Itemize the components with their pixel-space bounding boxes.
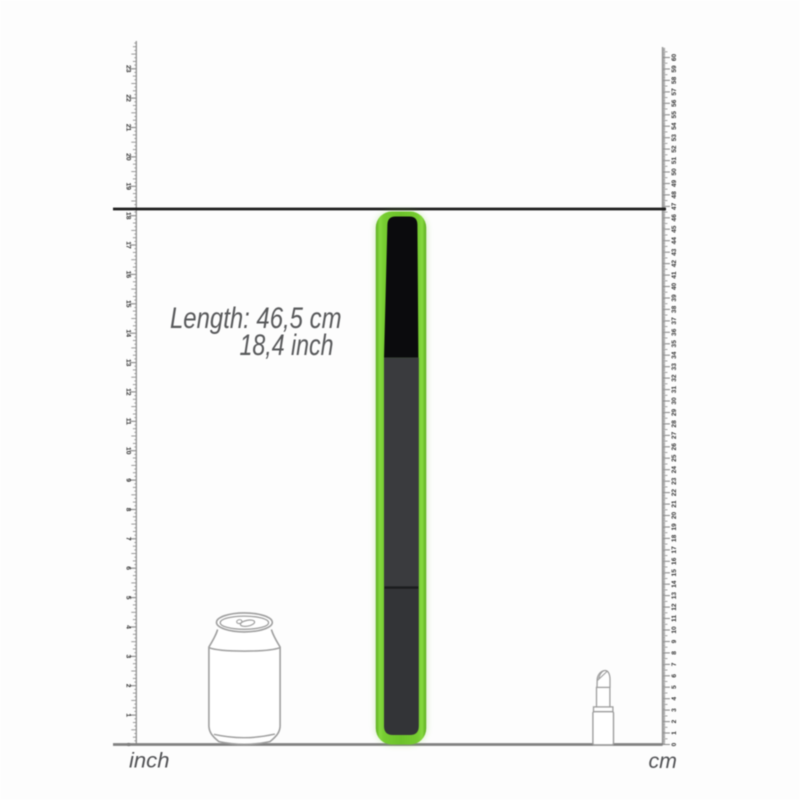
svg-text:55: 55 xyxy=(671,111,678,119)
svg-text:30: 30 xyxy=(671,397,678,405)
svg-text:6: 6 xyxy=(125,566,132,570)
svg-text:59: 59 xyxy=(671,65,678,73)
svg-text:3: 3 xyxy=(125,655,132,659)
svg-text:4: 4 xyxy=(671,697,678,701)
svg-text:24: 24 xyxy=(671,466,678,474)
svg-text:19: 19 xyxy=(125,183,132,191)
svg-text:46: 46 xyxy=(671,214,678,222)
svg-text:57: 57 xyxy=(671,88,678,96)
svg-text:44: 44 xyxy=(671,237,678,245)
svg-text:1: 1 xyxy=(671,731,678,735)
svg-text:31: 31 xyxy=(671,386,678,394)
svg-text:56: 56 xyxy=(671,99,678,107)
svg-text:9: 9 xyxy=(125,478,132,482)
svg-text:10: 10 xyxy=(671,626,678,634)
svg-text:4: 4 xyxy=(125,625,132,629)
svg-text:45: 45 xyxy=(671,225,678,233)
svg-text:17: 17 xyxy=(125,241,132,249)
svg-text:26: 26 xyxy=(671,443,678,451)
svg-text:37: 37 xyxy=(671,317,678,325)
svg-text:3: 3 xyxy=(671,708,678,712)
svg-text:60: 60 xyxy=(671,54,678,62)
svg-text:15: 15 xyxy=(125,300,132,308)
svg-text:5: 5 xyxy=(125,596,132,600)
svg-text:16: 16 xyxy=(671,557,678,565)
svg-text:cm: cm xyxy=(649,749,678,773)
svg-text:38: 38 xyxy=(671,305,678,313)
svg-text:2: 2 xyxy=(671,719,678,723)
svg-text:23: 23 xyxy=(671,477,678,485)
svg-text:23: 23 xyxy=(125,65,132,73)
svg-text:49: 49 xyxy=(671,180,678,188)
svg-text:6: 6 xyxy=(671,674,678,678)
svg-text:13: 13 xyxy=(125,359,132,367)
svg-text:48: 48 xyxy=(671,191,678,199)
svg-text:21: 21 xyxy=(671,500,678,508)
svg-text:47: 47 xyxy=(671,202,678,210)
svg-text:18: 18 xyxy=(671,534,678,542)
svg-text:13: 13 xyxy=(671,592,678,600)
svg-text:7: 7 xyxy=(671,662,678,666)
svg-text:21: 21 xyxy=(125,124,132,132)
svg-text:28: 28 xyxy=(671,420,678,428)
svg-text:11: 11 xyxy=(125,418,132,425)
svg-text:42: 42 xyxy=(671,260,678,268)
svg-text:8: 8 xyxy=(671,651,678,655)
svg-text:18,4 inch: 18,4 inch xyxy=(240,329,334,362)
svg-text:35: 35 xyxy=(671,340,678,348)
svg-text:5: 5 xyxy=(671,685,678,689)
svg-text:22: 22 xyxy=(125,94,132,102)
svg-text:41: 41 xyxy=(671,271,678,279)
svg-text:12: 12 xyxy=(125,388,132,396)
svg-text:40: 40 xyxy=(671,283,678,291)
svg-text:1: 1 xyxy=(125,713,132,717)
svg-text:11: 11 xyxy=(671,615,678,622)
svg-text:51: 51 xyxy=(671,157,678,165)
svg-text:0: 0 xyxy=(671,742,678,746)
svg-text:2: 2 xyxy=(125,684,132,688)
svg-text:14: 14 xyxy=(125,329,132,337)
svg-text:52: 52 xyxy=(671,145,678,153)
svg-text:16: 16 xyxy=(125,271,132,279)
svg-text:19: 19 xyxy=(671,523,678,531)
svg-text:10: 10 xyxy=(125,447,132,455)
svg-text:43: 43 xyxy=(671,248,678,256)
svg-text:34: 34 xyxy=(671,351,678,359)
svg-text:27: 27 xyxy=(671,431,678,439)
svg-text:39: 39 xyxy=(671,294,678,302)
svg-text:58: 58 xyxy=(671,76,678,84)
svg-text:17: 17 xyxy=(671,546,678,554)
svg-text:54: 54 xyxy=(671,122,678,130)
svg-text:36: 36 xyxy=(671,328,678,336)
svg-text:25: 25 xyxy=(671,454,678,462)
svg-text:15: 15 xyxy=(671,569,678,577)
svg-text:8: 8 xyxy=(125,508,132,512)
svg-text:inch: inch xyxy=(129,749,170,773)
svg-text:14: 14 xyxy=(671,580,678,588)
svg-text:20: 20 xyxy=(125,153,132,161)
svg-text:18: 18 xyxy=(125,212,132,220)
svg-text:12: 12 xyxy=(671,603,678,611)
svg-text:50: 50 xyxy=(671,168,678,176)
svg-text:32: 32 xyxy=(671,374,678,382)
svg-text:22: 22 xyxy=(671,489,678,497)
svg-text:33: 33 xyxy=(671,363,678,371)
svg-text:20: 20 xyxy=(671,512,678,520)
svg-text:7: 7 xyxy=(125,537,132,541)
svg-text:53: 53 xyxy=(671,134,678,142)
svg-text:9: 9 xyxy=(671,639,678,643)
svg-text:29: 29 xyxy=(671,409,678,417)
